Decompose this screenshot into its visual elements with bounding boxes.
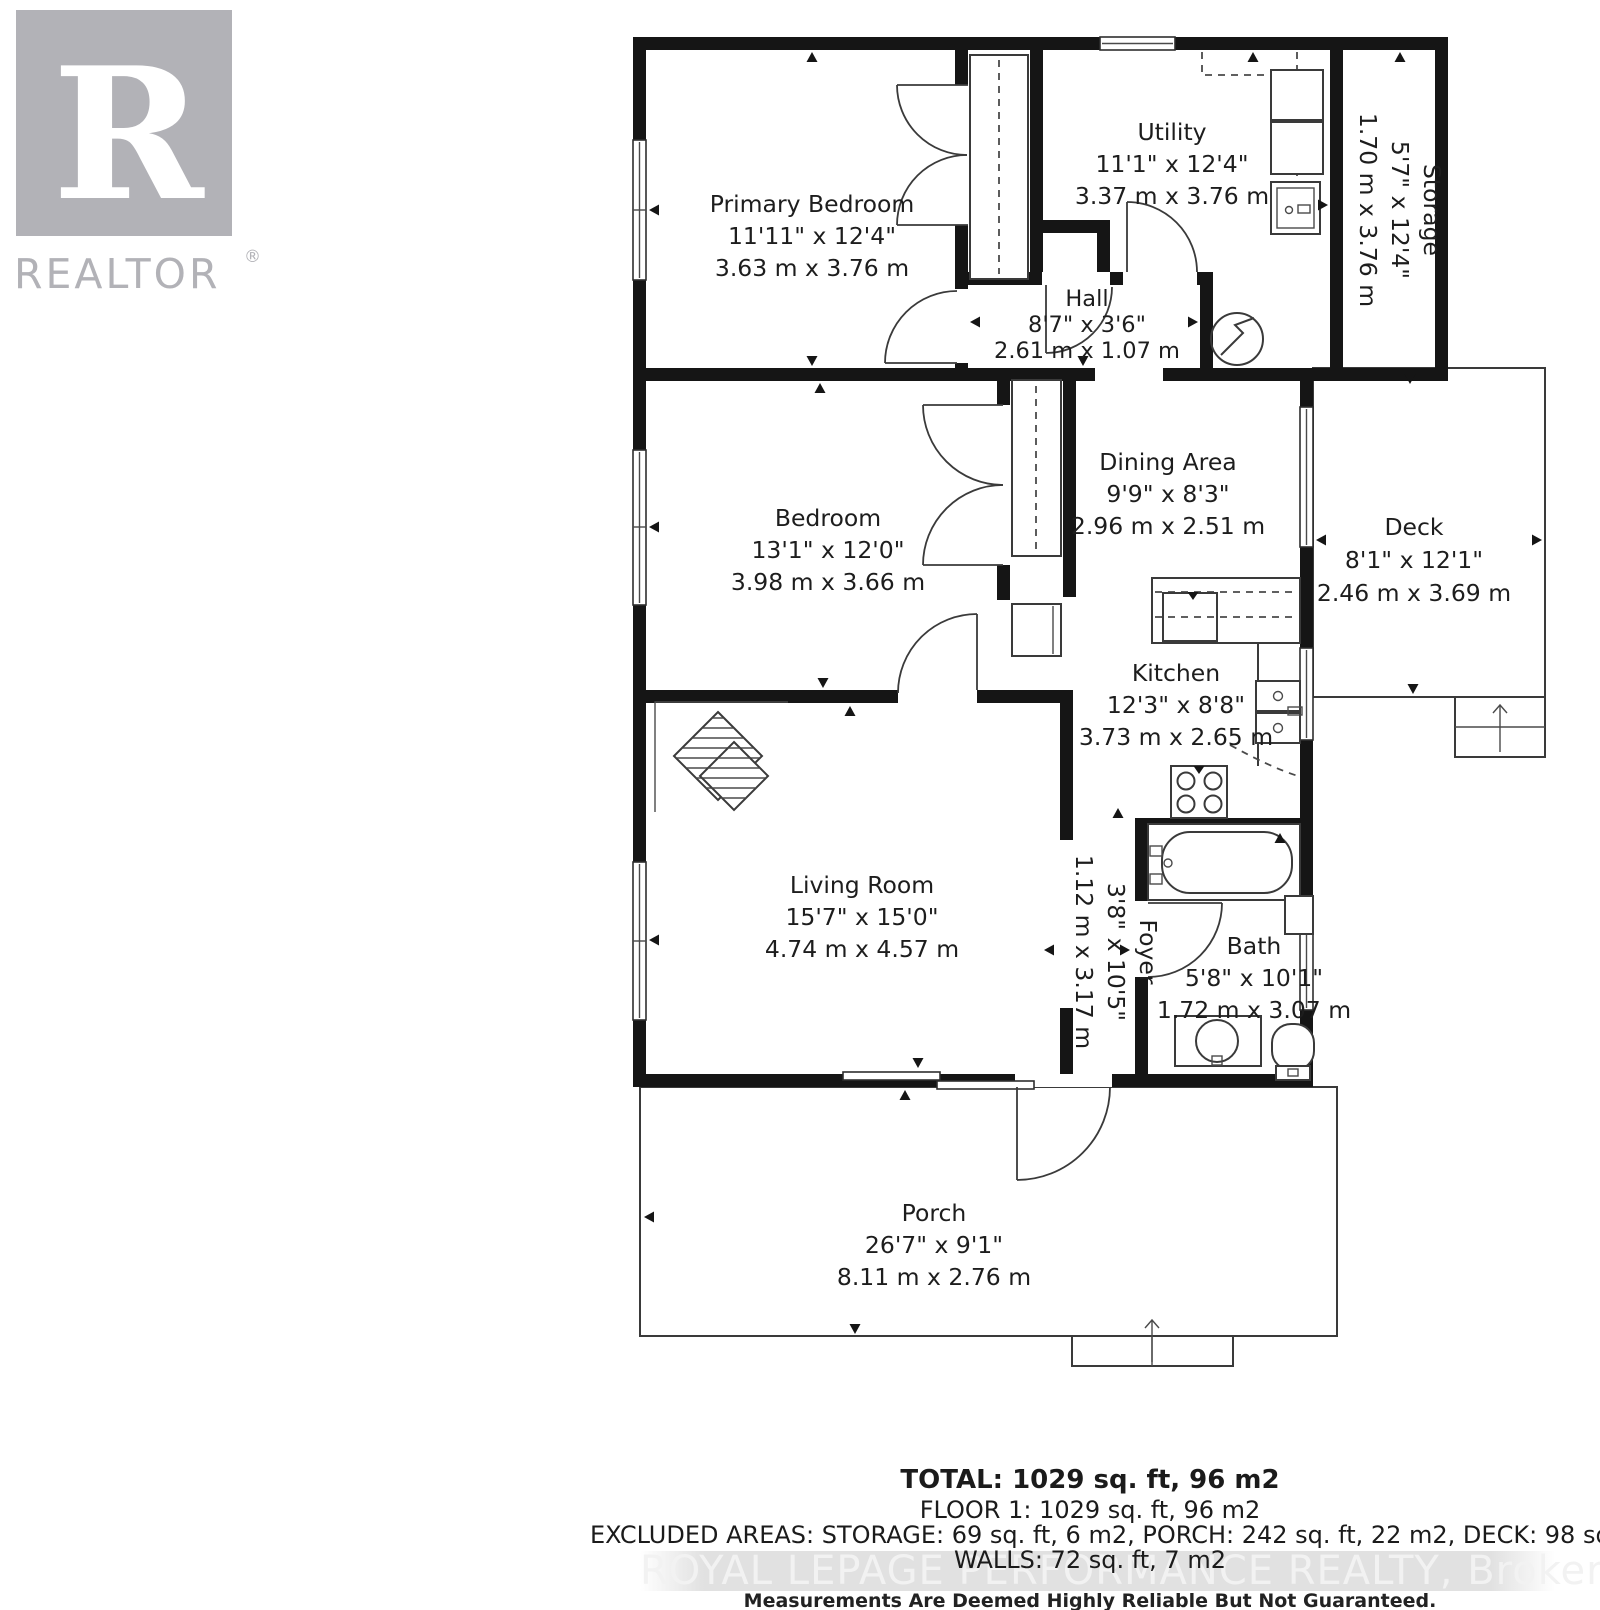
- window-living-room: [633, 862, 646, 1020]
- label-primary-bedroom: Primary Bedroom 11'11" x 12'4" 3.63 m x …: [710, 190, 915, 282]
- room-dims-imperial: 12'3" x 8'8": [1107, 691, 1245, 719]
- window-bedroom: [633, 450, 646, 605]
- total-area-line: TOTAL: 1029 sq. ft, 96 m2: [590, 1465, 1590, 1495]
- deck-stairs-icon: [1455, 697, 1545, 757]
- label-utility: Utility 11'1" x 12'4" 3.37 m x 3.76 m: [1075, 118, 1269, 210]
- dining-closet: [1012, 380, 1061, 556]
- window-dining-deck: [1300, 407, 1313, 547]
- room-dims-imperial: 11'1" x 12'4": [1095, 150, 1248, 178]
- room-dims-imperial: 3'8" x 10'5": [1102, 883, 1130, 1021]
- room-name: Storage: [1418, 164, 1446, 256]
- room-name: Porch: [902, 1199, 967, 1227]
- room-name: Primary Bedroom: [710, 190, 915, 218]
- room-dims-metric: 4.74 m x 4.57 m: [765, 935, 959, 963]
- room-dims-metric: 1.12 m x 3.17 m: [1070, 855, 1098, 1049]
- floorplan-drawing: Primary Bedroom 11'11" x 12'4" 3.63 m x …: [0, 0, 1600, 1610]
- window-utility: [1100, 37, 1175, 50]
- utility-sink-icon: [1271, 182, 1320, 234]
- furnace-icon: [1211, 313, 1263, 365]
- washer-icon: [1271, 70, 1323, 120]
- label-hall: Hall 8'7" x 3'6" 2.61 m x 1.07 m: [994, 286, 1180, 364]
- label-storage: Storage 5'7" x 12'4" 1.70 m x 3.76 m: [1354, 113, 1446, 307]
- room-dims-metric: 2.46 m x 3.69 m: [1317, 579, 1511, 607]
- floor-area-line: FLOOR 1: 1029 sq. ft, 96 m2: [590, 1496, 1590, 1524]
- room-dims-imperial: 8'7" x 3'6": [1028, 312, 1146, 338]
- door-bedroom-closet: [923, 405, 1003, 565]
- disclaimer-line: Measurements Are Deemed Highly Reliable …: [590, 1590, 1590, 1610]
- room-dims-metric: 2.96 m x 2.51 m: [1071, 512, 1265, 540]
- door-bedroom: [898, 614, 977, 693]
- room-dims-metric: 3.73 m x 2.65 m: [1079, 723, 1273, 751]
- room-dims-metric: 3.63 m x 3.76 m: [715, 254, 909, 282]
- room-dims-metric: 1.72 m x 3.07 m: [1157, 996, 1351, 1024]
- room-dims-metric: 8.11 m x 2.76 m: [837, 1263, 1031, 1291]
- label-bath: Bath 5'8" x 10'1" 1.72 m x 3.07 m: [1157, 932, 1351, 1024]
- kitchen-peninsula: [1152, 578, 1300, 643]
- room-dims-imperial: 26'7" x 9'1": [865, 1231, 1003, 1259]
- window-primary-bedroom: [633, 140, 646, 280]
- label-kitchen: Kitchen 12'3" x 8'8" 3.73 m x 2.65 m: [1079, 659, 1273, 751]
- room-name: Bedroom: [775, 504, 881, 532]
- room-dims-imperial: 9'9" x 8'3": [1106, 480, 1229, 508]
- room-name: Foyer: [1134, 919, 1162, 984]
- dryer-icon: [1271, 122, 1323, 174]
- door-utility: [1127, 202, 1197, 272]
- room-dims-imperial: 13'1" x 12'0": [751, 536, 904, 564]
- room-dims-imperial: 5'8" x 10'1": [1185, 964, 1323, 992]
- door-primary-bedroom: [885, 291, 957, 363]
- room-dims-metric: 2.61 m x 1.07 m: [994, 338, 1180, 364]
- label-living-room: Living Room 15'7" x 15'0" 4.74 m x 4.57 …: [765, 871, 959, 963]
- room-name: Living Room: [790, 871, 934, 899]
- bathtub-icon: [1148, 824, 1300, 900]
- toilet-icon: [1272, 1024, 1314, 1080]
- room-name: Utility: [1137, 118, 1206, 146]
- room-dims-metric: 1.70 m x 3.76 m: [1354, 113, 1382, 307]
- window-kitchen-deck: [1300, 648, 1313, 740]
- room-dims-imperial: 5'7" x 12'4": [1386, 141, 1414, 279]
- room-dims-imperial: 8'1" x 12'1": [1345, 546, 1483, 574]
- room-dims-metric: 3.37 m x 3.76 m: [1075, 182, 1269, 210]
- room-name: Dining Area: [1099, 448, 1236, 476]
- walls-area-line: WALLS: 72 sq. ft, 7 m2: [590, 1546, 1590, 1574]
- room-name: Deck: [1384, 513, 1443, 541]
- room-name: Kitchen: [1132, 659, 1220, 687]
- porch-outline: [640, 1087, 1337, 1366]
- room-dims-metric: 3.98 m x 3.66 m: [731, 568, 925, 596]
- excluded-areas-line: EXCLUDED AREAS: STORAGE: 69 sq. ft, 6 m2…: [590, 1521, 1590, 1549]
- label-dining-area: Dining Area 9'9" x 8'3" 2.96 m x 2.51 m: [1071, 448, 1265, 540]
- label-bedroom: Bedroom 13'1" x 12'0" 3.98 m x 3.66 m: [731, 504, 925, 596]
- room-name: Hall: [1065, 286, 1108, 312]
- room-name: Bath: [1227, 932, 1282, 960]
- primary-closet: [970, 55, 1028, 279]
- floorplan-page: R REALTOR ®: [0, 0, 1600, 1610]
- bath-shelf: [1285, 896, 1313, 934]
- room-dims-imperial: 15'7" x 15'0": [785, 903, 938, 931]
- cabinet: [1012, 604, 1061, 656]
- room-dims-imperial: 11'11" x 12'4": [728, 222, 896, 250]
- stove-icon: [1171, 766, 1227, 818]
- fireplace-icon: [655, 702, 788, 812]
